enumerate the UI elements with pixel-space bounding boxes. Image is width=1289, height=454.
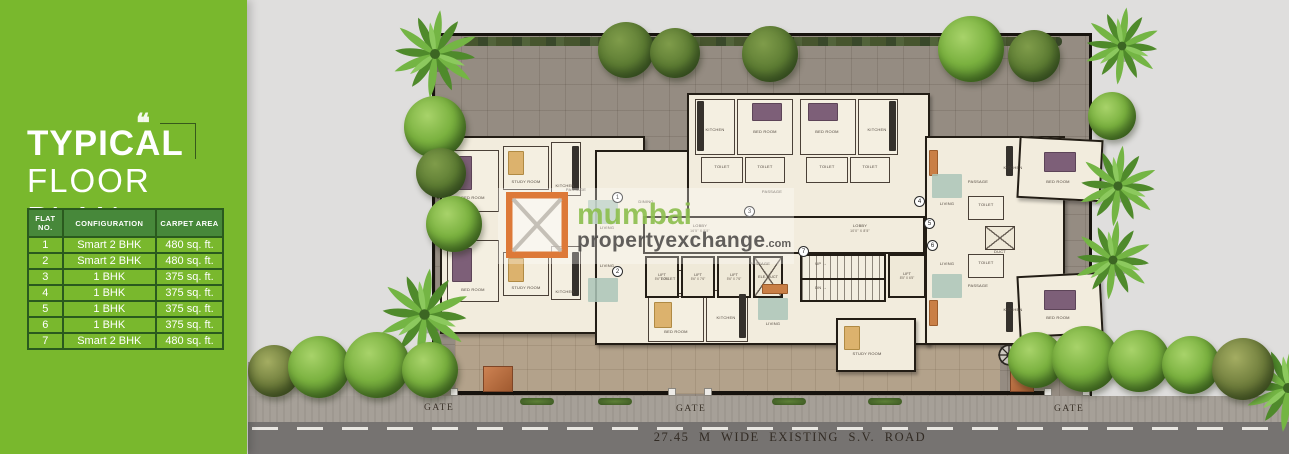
table-row: 7 Smart 2 BHK 480 sq. ft. (28, 333, 223, 349)
cell-configuration: 1 BHK (63, 301, 156, 317)
room-label-bedroom: BED ROOM (1036, 316, 1080, 321)
room-label-kitchen: KITCHEN (860, 128, 894, 133)
room-label-passage: PASSAGE (958, 180, 998, 185)
watermark-logo-icon (506, 192, 568, 258)
flat-number-badge: 7 (798, 246, 809, 257)
flat-table-header-row: FLAT NO. CONFIGURATION CARPET AREA (28, 209, 223, 237)
stairs-down-label: DN → (806, 286, 836, 291)
room-label-living: LIVING (932, 202, 962, 207)
watermark-text: mumbai propertyexchange.com (577, 200, 791, 252)
table-row: 3 1 BHK 375 sq. ft. (28, 269, 223, 285)
watermark-brand: mumbai (577, 200, 791, 230)
bush (288, 336, 350, 398)
up-label: UP (815, 261, 821, 266)
entrance-canopy (483, 366, 513, 392)
palm-tree (385, 4, 485, 104)
col-header-carpet-area: CARPET AREA (156, 209, 223, 237)
lift-dim: 5'6" X 7'6" (691, 277, 705, 281)
cell-flat-no: 7 (28, 333, 63, 349)
bush (938, 16, 1004, 82)
bush (1088, 92, 1136, 140)
ele-duct-label: ELE. DUCT (758, 275, 778, 279)
room-label-passage: PASSAGE (958, 284, 998, 289)
rug-icon (932, 174, 962, 198)
room-toilet (745, 157, 785, 183)
room-toilet (850, 157, 890, 183)
kitchen-counter-icon (889, 101, 896, 151)
kitchen-counter-icon (1006, 146, 1013, 176)
cell-carpet-area: 375 sq. ft. (156, 285, 223, 301)
cell-carpet-area: 480 sq. ft. (156, 253, 223, 269)
room-label-kitchen: KITCHEN (698, 128, 732, 133)
table-row: 4 1 BHK 375 sq. ft. (28, 285, 223, 301)
room-label-kitchen: KITCHEN (996, 166, 1030, 171)
flat-table: FLAT NO. CONFIGURATION CARPET AREA 1 Sma… (27, 208, 224, 350)
room-label-toilet: TOILET (652, 277, 684, 282)
sofa-icon (929, 300, 938, 326)
cell-carpet-area: 375 sq. ft. (156, 301, 223, 317)
cell-flat-no: 4 (28, 285, 63, 301)
cell-flat-no: 3 (28, 269, 63, 285)
bush (1008, 30, 1060, 82)
shrub (772, 398, 806, 405)
watermark-tld: .com (765, 238, 791, 250)
cell-configuration: 1 BHK (63, 269, 156, 285)
shrub (520, 398, 554, 405)
cell-flat-no: 6 (28, 317, 63, 333)
bush (344, 332, 410, 398)
room-label-duct: DUCT (986, 250, 1014, 255)
room-label-toilet: TOILET (970, 203, 1002, 208)
sidewalk (248, 396, 1289, 422)
lift-dim: 8'5" X 6'5" (900, 276, 914, 280)
room-label-study: STUDY ROOM (504, 180, 548, 185)
room-label-kitchen: KITCHEN (708, 316, 744, 321)
sofa-icon (929, 150, 938, 176)
info-panel: ❝ TYPICAL FLOOR PLAN FLAT NO. CONFIGURAT… (0, 0, 247, 454)
duct-shaft (985, 226, 1015, 250)
quote-line-decoration (160, 123, 196, 159)
bush (598, 22, 654, 78)
room-label-study: STUDY ROOM (842, 352, 892, 357)
cell-flat-no: 1 (28, 237, 63, 253)
bush (650, 28, 700, 78)
cell-flat-no: 5 (28, 301, 63, 317)
cell-configuration: 1 BHK (63, 285, 156, 301)
palm-tree (1068, 215, 1158, 305)
cell-carpet-area: 375 sq. ft. (156, 317, 223, 333)
gate-post (704, 388, 712, 396)
table-row: 6 1 BHK 375 sq. ft. (28, 317, 223, 333)
room-label-kitchen: KITCHEN (548, 290, 582, 295)
fence-segment (710, 391, 1048, 395)
lobby-name: LOBBY (853, 223, 867, 228)
room-toilet (806, 157, 848, 183)
lobby-dim: 10'0" X 8'5" (838, 229, 882, 233)
flat-number-badge: 5 (924, 218, 935, 229)
gate-post (1044, 388, 1052, 396)
kitchen-counter-icon (697, 101, 704, 151)
room-label-toilet: TOILET (706, 165, 738, 170)
shrub (868, 398, 902, 405)
table-row: 1 Smart 2 BHK 480 sq. ft. (28, 237, 223, 253)
rug-icon (758, 298, 788, 320)
room-label-kitchen: KITCHEN (996, 308, 1030, 313)
floor-plan-brochure: 27.45 M WIDE EXISTING S.V. ROAD GATE GAT… (0, 0, 1289, 454)
cell-flat-no: 2 (28, 253, 63, 269)
cell-carpet-area: 480 sq. ft. (156, 333, 223, 349)
cell-configuration: Smart 2 BHK (63, 253, 156, 269)
room-label-bedroom: BED ROOM (744, 130, 786, 135)
watermark-brand2: propertyexchange (577, 229, 765, 252)
room-label-living: LIVING (758, 322, 788, 327)
room-toilet (701, 157, 743, 183)
cell-carpet-area: 480 sq. ft. (156, 237, 223, 253)
flat-number-badge: 2 (612, 266, 623, 277)
bush (416, 148, 466, 198)
lift-dim: 5'6" X 7'6" (727, 277, 741, 281)
room-toilet (968, 254, 1004, 278)
bed-icon (808, 103, 838, 121)
bush (1108, 330, 1170, 392)
bed-icon (752, 103, 782, 121)
flat-number-badge: 6 (927, 240, 938, 251)
dn-label: DN (815, 285, 821, 290)
shrub (598, 398, 632, 405)
room-label-bedroom: BED ROOM (654, 330, 698, 335)
room-label-toilet: TOILET (749, 165, 781, 170)
lobby-label: LOBBY 10'0" X 8'5" (838, 224, 882, 233)
sofa-icon (762, 284, 788, 294)
gate-post (668, 388, 676, 396)
bush (1212, 338, 1274, 400)
room-toilet (968, 196, 1004, 220)
room-label-toilet: TOILET (854, 165, 886, 170)
rug-icon (588, 278, 618, 302)
cell-configuration: Smart 2 BHK (63, 333, 156, 349)
cell-configuration: 1 BHK (63, 317, 156, 333)
col-header-configuration: CONFIGURATION (63, 209, 156, 237)
table-row: 2 Smart 2 BHK 480 sq. ft. (28, 253, 223, 269)
bush (426, 196, 482, 252)
room-label-bedroom: BED ROOM (806, 130, 848, 135)
stairs-up-label: UP → (806, 262, 836, 267)
room-label-living: LIVING (932, 262, 962, 267)
bed-icon (508, 151, 524, 175)
bush (742, 26, 798, 82)
flat-number-badge: 4 (914, 196, 925, 207)
palm-tree (1078, 2, 1166, 90)
lift-shaft: LIFT 8'5" X 6'5" (888, 254, 926, 298)
road-label: 27.45 M WIDE EXISTING S.V. ROAD (560, 430, 1020, 445)
room-label-toilet: TOILET (811, 165, 843, 170)
bed-icon (654, 302, 672, 328)
room-label-study: STUDY ROOM (504, 286, 548, 291)
col-header-flat-no: FLAT NO. (28, 209, 63, 237)
gate-label-2: GATE (676, 404, 706, 414)
cell-carpet-area: 375 sq. ft. (156, 269, 223, 285)
gate-post (450, 388, 458, 396)
gate-label-3: GATE (1054, 404, 1084, 414)
bush (402, 342, 458, 398)
quote-icon: ❝ (136, 108, 150, 139)
bed-icon (844, 326, 860, 350)
room-label-toilet: TOILET (970, 261, 1002, 266)
table-row: 5 1 BHK 375 sq. ft. (28, 301, 223, 317)
cell-configuration: Smart 2 BHK (63, 237, 156, 253)
gate-label-1: GATE (424, 403, 454, 413)
